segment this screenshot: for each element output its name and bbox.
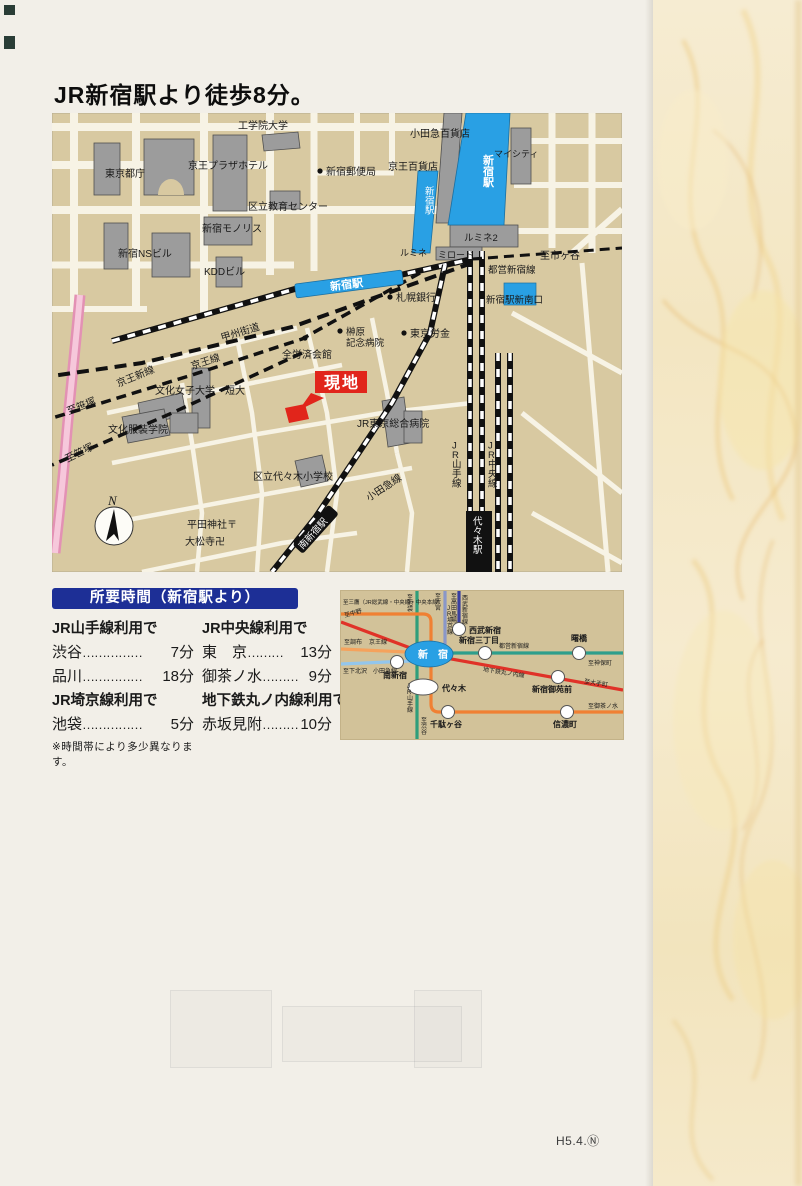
map-label-lumine2: ルミネ2 xyxy=(464,233,498,244)
railmap-to-shimokitazawa: 至下北沢 xyxy=(343,667,367,675)
table-row: 東 京 ……… 13分 xyxy=(202,641,332,665)
map-label-mycity: マイシティ xyxy=(494,149,538,159)
railmap-to-chofu: 至調布 xyxy=(344,638,362,646)
railmap-to-jimbocho: 至神保町 xyxy=(588,659,612,667)
railmap-sanchome: 新宿三丁目 xyxy=(459,635,499,645)
map-label-tocho: 東京都庁 xyxy=(105,167,145,180)
table-row: 御茶ノ水 ……… 9分 xyxy=(202,665,332,689)
railway-network-map: 新 宿 西武新宿 新宿三丁目 曙橋 南新宿 代々木 新宿御苑前 千駄ヶ谷 信濃町… xyxy=(340,590,624,740)
table-row: 渋谷 …………… 7分 xyxy=(52,641,194,665)
line-group-saikyo: JR埼京線利用で xyxy=(52,689,194,713)
compass xyxy=(95,507,133,545)
railmap-shinanomachi: 信濃町 xyxy=(553,719,577,729)
railmap-keio-line: 京王線 xyxy=(369,638,387,646)
map-label-sakakibara1: 榊原 xyxy=(346,326,365,338)
building-kogakuin xyxy=(262,132,300,151)
map-label-shinjuku-west: 新宿駅 xyxy=(425,186,435,217)
line-group-marunouchi: 地下鉄丸ノ内線利用で xyxy=(202,689,332,713)
map-label-kogakuin: 工学院大学 xyxy=(238,119,288,132)
map-label-bunka-univ: 文化女子大学・短大 xyxy=(155,384,245,397)
map-label-daimatsu-temple: 大松寺卍 xyxy=(185,535,225,548)
railmap-to-omiya: 至大宮 xyxy=(435,593,441,612)
map-label-new-south-exit: 新宿駅新南口 xyxy=(486,294,543,306)
print-showthrough xyxy=(414,990,482,1068)
map-label-yoyogi-elem: 区立代々木小学校 xyxy=(253,470,333,483)
map-label-sapporo-bank: 札幌銀行 xyxy=(396,291,436,304)
compass-n: N xyxy=(107,493,118,508)
print-showthrough xyxy=(170,990,272,1068)
map-label-to-ichigaya: 至市ヶ谷 xyxy=(540,249,580,262)
railmap-toei-line: 都営新宿線 xyxy=(499,642,529,650)
railmap-akebonobashi: 曙橋 xyxy=(571,633,588,643)
access-time-table: 所要時間（新宿駅より） JR山手線利用で 渋谷 …………… 7分 品川 …………… xyxy=(52,588,332,769)
railmap-to-mitaka: 至三鷹（JR総武線・中央線・中央本線） xyxy=(343,598,443,606)
print-registration-mark xyxy=(4,5,15,15)
map-label-jr-hospital: JR東京総合病院 xyxy=(357,417,429,430)
map-label-tokyo-rokin: 東京労金 xyxy=(410,327,450,340)
railmap-gyoemmae: 新宿御苑前 xyxy=(532,684,572,694)
railmap-to-ikebukuro: 至池袋 xyxy=(407,594,413,613)
print-registration-mark xyxy=(4,36,15,49)
map-label-keio-plaza: 京王プラザホテル xyxy=(188,159,268,172)
map-label-ns-bldg: 新宿NSビル xyxy=(118,247,172,260)
table-row: 赤坂見附 ……… 10分 xyxy=(202,713,332,737)
map-label-monolith: 新宿モノリス xyxy=(202,222,262,235)
map-label-odakyu-dept: 小田急百貨店 xyxy=(410,127,470,140)
map-label-kdd: KDDビル xyxy=(204,266,245,278)
building-keio-plaza xyxy=(213,135,247,211)
map-label-keio-dept: 京王百貨店 xyxy=(388,160,438,173)
site-label: 現地 xyxy=(324,373,360,392)
area-map: 工学院大学 小田急百貨店 マイシティ 東京都庁 京王プラザホテル 新宿郵便局 京… xyxy=(52,113,622,572)
railmap-sendagaya: 千駄ヶ谷 xyxy=(430,719,463,729)
table-row: 池袋 …………… 5分 xyxy=(52,713,194,737)
page-number: H5.4.Ⓝ xyxy=(556,1132,600,1149)
map-label-bunka-fashion: 文化服装学院 xyxy=(108,423,168,436)
map-label-mylord: ミロード xyxy=(438,250,474,260)
map-label-zenrosai: 全労済会館 xyxy=(282,348,332,361)
table-row: 品川 …………… 18分 xyxy=(52,665,194,689)
railmap-seibu-line: 西武新宿線 xyxy=(462,595,468,626)
map-label-lumine: ルミネ xyxy=(400,248,427,258)
railmap-to-ochanomizu: 至御茶ノ水 xyxy=(588,702,618,710)
railmap-seibu-shinjuku: 西武新宿 xyxy=(469,625,501,635)
map-label-post-office: 新宿郵便局 xyxy=(326,165,376,178)
map-label-shinjuku-east: 新宿駅 xyxy=(482,153,498,189)
map-label-yoyogi-sta: 代々木駅 xyxy=(473,517,483,557)
building-bunka-fashion2 xyxy=(170,413,198,433)
washi-paper-texture xyxy=(653,0,802,1186)
building-tocho-south xyxy=(104,223,128,269)
railmap-yoyogi: 代々木 xyxy=(441,683,467,693)
line-group-yamanote: JR山手線利用で xyxy=(52,617,194,641)
access-table-header: 所要時間（新宿駅より） xyxy=(52,588,298,609)
table-note: ※時間帯により多少異なります。 xyxy=(52,739,194,769)
line-group-chuo: JR中央線利用で xyxy=(202,617,332,641)
map-label-toei-line: 都営新宿線 xyxy=(488,264,536,276)
map-label-edu-center: 区立教育センター xyxy=(248,200,328,213)
railmap-to-shibuya: 至渋谷 xyxy=(421,717,427,736)
railmap-to-takadanobaba: 至高田馬場 xyxy=(451,593,457,624)
map-label-hirata-shrine: 平田神社〒 xyxy=(187,518,237,531)
page-title: JR新宿駅より徒歩8分。 xyxy=(54,76,315,110)
page-fold-shadow xyxy=(645,0,653,1186)
map-label-sakakibara2: 記念病院 xyxy=(346,337,385,349)
railmap-odakyu-line: 小田急線 xyxy=(373,667,397,675)
railmap-shinjuku: 新 宿 xyxy=(418,648,448,661)
